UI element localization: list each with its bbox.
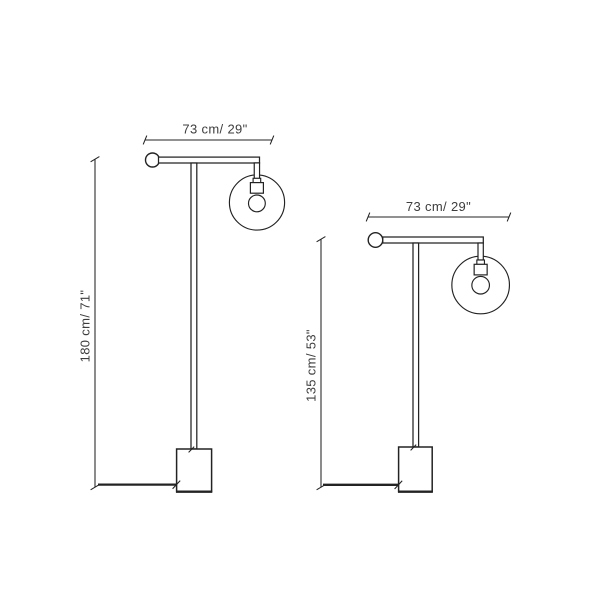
lamp-large: 73 cm/ 29" 180 cm/ 71" [78,122,285,492]
base-block [177,449,212,492]
width-dimension-label: 73 cm/ 29" [182,122,247,137]
vertical-pole [191,163,197,449]
pendant-drop-rod [254,163,259,179]
finial-ball [146,153,160,167]
horizontal-arm [159,157,260,163]
bulb-socket [250,183,263,194]
bulb-socket [474,264,487,275]
lamp-dimension-diagram: 73 cm/ 29" 180 cm/ 71" 73 cm/ 29" 135 cm… [0,0,600,600]
pendant-drop-rod [478,243,483,260]
horizontal-arm [383,237,484,243]
light-bulb [249,195,266,212]
diagram-canvas: 73 cm/ 29" 180 cm/ 71" 73 cm/ 29" 135 cm… [0,0,600,600]
light-bulb [472,276,490,294]
width-dimension-label: 73 cm/ 29" [406,199,471,214]
base-block [399,447,433,492]
vertical-pole [413,243,419,447]
lamp-small: 73 cm/ 29" 135 cm/ 53" [304,199,511,492]
height-dimension-label: 180 cm/ 71" [78,290,93,363]
finial-ball [368,233,383,248]
height-dimension-label: 135 cm/ 53" [304,329,319,402]
